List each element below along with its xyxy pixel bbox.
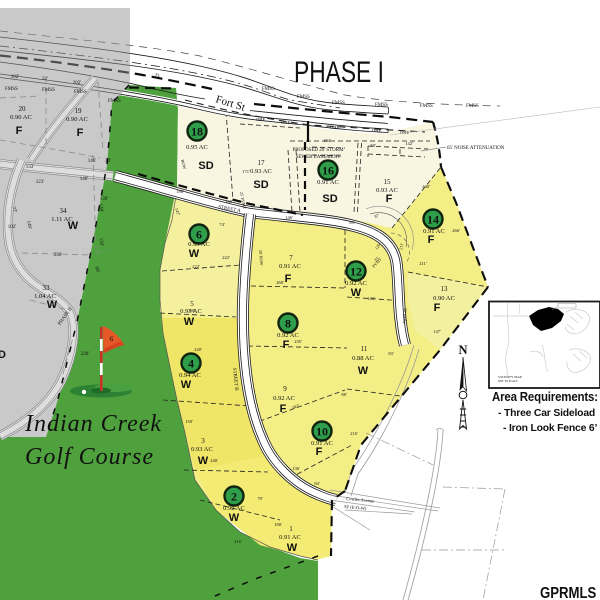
svg-text:FMSS: FMSS — [5, 87, 18, 92]
svg-text:184': 184' — [323, 138, 331, 143]
svg-text:0.91 AC: 0.91 AC — [279, 534, 301, 541]
svg-text:FMSS: FMSS — [42, 88, 55, 93]
svg-text:33: 33 — [43, 284, 51, 292]
svg-text:W: W — [358, 365, 369, 377]
svg-text:D: D — [0, 349, 6, 361]
svg-text:102': 102' — [8, 225, 17, 230]
svg-text:1: 1 — [289, 525, 293, 533]
svg-text:12: 12 — [350, 265, 362, 279]
svg-text:F: F — [316, 446, 323, 458]
svg-text:8: 8 — [285, 317, 291, 331]
svg-text:N: N — [458, 343, 467, 357]
svg-text:FMSS: FMSS — [74, 90, 87, 95]
svg-text:0.93 AC: 0.93 AC — [188, 241, 210, 248]
svg-text:15: 15 — [384, 178, 392, 186]
svg-text:143': 143' — [367, 296, 375, 301]
svg-text:0.93 AC: 0.93 AC — [191, 446, 213, 453]
svg-text:FMSS: FMSS — [262, 87, 275, 92]
svg-text:0.92 AC: 0.92 AC — [277, 332, 299, 339]
svg-text:W: W — [68, 220, 79, 232]
svg-text:88': 88' — [341, 392, 347, 397]
svg-text:220': 220' — [81, 352, 90, 357]
svg-text:150': 150' — [185, 419, 193, 424]
svg-text:F: F — [428, 234, 435, 246]
svg-text:230': 230' — [54, 253, 63, 258]
svg-text:6: 6 — [196, 228, 202, 242]
svg-text:216': 216' — [350, 431, 358, 436]
svg-text:FMSS: FMSS — [466, 104, 479, 109]
svg-text:16: 16 — [322, 164, 334, 178]
svg-text:17: 17 — [258, 159, 266, 167]
svg-text:74': 74' — [219, 222, 225, 227]
svg-text:- Three Car Sideload: - Three Car Sideload — [498, 408, 595, 419]
svg-text:GPRMLS: GPRMLS — [540, 585, 597, 600]
svg-text:102': 102' — [11, 75, 20, 80]
svg-text:0.94 AC: 0.94 AC — [179, 372, 201, 379]
svg-text:0.93 AC: 0.93 AC — [180, 308, 202, 315]
svg-text:Indian Creek: Indian Creek — [24, 411, 162, 437]
svg-text:186': 186' — [176, 189, 184, 194]
svg-text:F: F — [285, 273, 292, 285]
svg-text:2: 2 — [231, 490, 237, 504]
svg-text:FMSS: FMSS — [420, 104, 433, 109]
svg-text:4: 4 — [188, 357, 194, 371]
svg-text:240': 240' — [422, 184, 430, 189]
svg-text:F: F — [386, 193, 393, 205]
svg-text:W: W — [229, 512, 240, 524]
svg-text:10: 10 — [316, 425, 328, 439]
svg-text:20: 20 — [19, 105, 27, 113]
svg-text:0.93 AC: 0.93 AC — [250, 168, 272, 175]
svg-text:F: F — [280, 403, 287, 415]
svg-text:139': 139' — [100, 197, 109, 202]
svg-text:W: W — [198, 455, 209, 467]
svg-text:32': 32' — [42, 77, 48, 82]
svg-text:Golf Course: Golf Course — [25, 444, 154, 470]
svg-text:0.92 AC: 0.92 AC — [345, 280, 367, 287]
svg-text:F: F — [434, 302, 441, 314]
svg-text:OHE: OHE — [330, 125, 339, 130]
svg-text:202': 202' — [73, 81, 82, 86]
svg-text:7: 7 — [289, 254, 293, 262]
svg-text:0.91 AC: 0.91 AC — [279, 263, 301, 270]
svg-text:84': 84' — [314, 481, 320, 486]
svg-text:F: F — [283, 339, 290, 351]
svg-text:133': 133' — [26, 165, 35, 170]
svg-text:5: 5 — [190, 300, 194, 308]
svg-text:FMSS: FMSS — [375, 103, 388, 108]
svg-text:171': 171' — [242, 169, 250, 174]
svg-text:139': 139' — [98, 238, 104, 247]
svg-text:83': 83' — [349, 220, 355, 225]
svg-text:W: W — [351, 287, 362, 299]
svg-text:136': 136' — [292, 466, 300, 471]
svg-text:W: W — [181, 379, 192, 391]
svg-text:70': 70' — [257, 496, 263, 501]
svg-text:FMSS: FMSS — [297, 95, 310, 100]
svg-text:W: W — [287, 542, 298, 554]
svg-text:123': 123' — [36, 180, 45, 185]
svg-text:Area Requirements:: Area Requirements: — [492, 390, 598, 405]
svg-text:142': 142' — [405, 141, 413, 146]
svg-text:220': 220' — [194, 347, 202, 352]
svg-text:SEWER EASEMENT: SEWER EASEMENT — [296, 155, 341, 160]
svg-text:VICINITY MAP: VICINITY MAP — [498, 375, 522, 379]
svg-text:SD: SD — [322, 193, 337, 205]
svg-text:222': 222' — [222, 255, 230, 260]
svg-text:0.92 AC: 0.92 AC — [273, 395, 295, 402]
svg-text:F: F — [16, 125, 23, 137]
svg-text:W: W — [47, 299, 58, 311]
svg-text:F: F — [77, 127, 84, 139]
svg-text:0.95 AC: 0.95 AC — [186, 144, 208, 151]
svg-text:3: 3 — [201, 437, 205, 445]
svg-text:0.90 AC: 0.90 AC — [433, 295, 455, 302]
svg-text:146': 146' — [80, 177, 89, 182]
svg-text:OHE: OHE — [281, 120, 290, 125]
svg-text:FMSS: FMSS — [332, 101, 345, 106]
svg-text:222': 222' — [192, 264, 200, 269]
svg-text:NOT TO SCALE: NOT TO SCALE — [498, 380, 518, 383]
svg-text:216': 216' — [234, 539, 242, 544]
svg-text:W: W — [189, 248, 200, 260]
svg-text:260': 260' — [276, 280, 284, 285]
svg-text:19: 19 — [75, 107, 83, 115]
svg-text:58': 58' — [370, 143, 376, 148]
svg-text:147': 147' — [433, 329, 441, 334]
svg-text:PROPOSED 20' STORM: PROPOSED 20' STORM — [292, 148, 344, 153]
svg-text:266': 266' — [452, 228, 460, 233]
svg-text:14: 14 — [427, 213, 439, 227]
svg-text:11: 11 — [361, 345, 368, 353]
svg-text:0.92 AC: 0.92 AC — [223, 505, 245, 512]
svg-text:0.90 AC: 0.90 AC — [66, 116, 88, 123]
svg-text:9: 9 — [283, 385, 287, 393]
svg-text:146': 146' — [285, 215, 293, 220]
svg-text:0.91 AC: 0.91 AC — [317, 179, 339, 186]
svg-text:211': 211' — [419, 261, 427, 266]
svg-text:0.90 AC: 0.90 AC — [10, 114, 32, 121]
svg-text:240': 240' — [210, 458, 218, 463]
svg-text:- Iron Look Fence 6’: - Iron Look Fence 6’ — [503, 423, 597, 434]
svg-text:PHASE I: PHASE I — [294, 55, 384, 89]
svg-text:0.88 AC: 0.88 AC — [352, 355, 374, 362]
svg-text:OHE: OHE — [372, 128, 381, 133]
svg-text:18: 18 — [191, 125, 203, 139]
svg-text:83': 83' — [388, 351, 394, 356]
svg-text:OHE: OHE — [256, 117, 265, 122]
svg-text:235': 235' — [294, 339, 302, 344]
svg-text:146': 146' — [88, 159, 97, 164]
svg-text:160': 160' — [225, 199, 233, 204]
svg-text:W: W — [184, 316, 195, 328]
svg-text:100': 100' — [274, 522, 282, 527]
svg-text:65' NOISE ATTENUATION: 65' NOISE ATTENUATION — [447, 146, 505, 151]
svg-text:SD: SD — [253, 179, 268, 191]
svg-text:34: 34 — [60, 207, 68, 215]
svg-text:13: 13 — [441, 285, 449, 293]
svg-text:SD: SD — [198, 160, 213, 172]
